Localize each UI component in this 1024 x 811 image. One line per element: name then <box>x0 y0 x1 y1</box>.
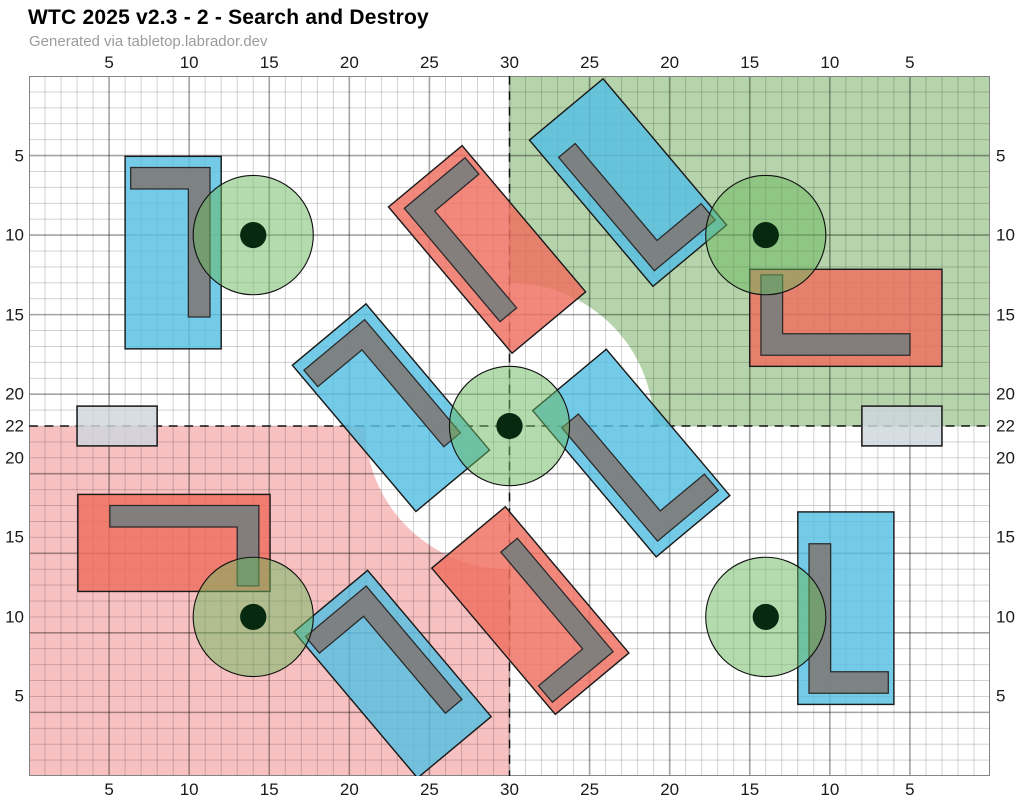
axis-tick-label: 15 <box>996 529 1015 546</box>
deployment-map-page: WTC 2025 v2.3 - 2 - Search and Destroy G… <box>0 0 1024 811</box>
axis-tick-label: 20 <box>996 449 1015 466</box>
axis-tick-label: 10 <box>996 227 1015 244</box>
axis-tick-label: 15 <box>740 54 759 71</box>
axis-tick-label: 20 <box>5 449 24 466</box>
deployment-map-plot <box>29 76 990 776</box>
edge-marker <box>862 406 942 446</box>
objective-marker <box>193 175 313 294</box>
axis-tick-label: 5 <box>905 781 914 798</box>
axis-tick-label: 25 <box>420 54 439 71</box>
axis-tick-label: 20 <box>5 386 24 403</box>
axis-tick-label: 5 <box>104 54 113 71</box>
axis-tick-label: 20 <box>996 386 1015 403</box>
axis-tick-label: 5 <box>996 147 1005 164</box>
page-title: WTC 2025 v2.3 - 2 - Search and Destroy <box>28 6 429 30</box>
axis-tick-label: 5 <box>104 781 113 798</box>
axis-tick-label: 5 <box>905 54 914 71</box>
axis-tick-label: 10 <box>820 781 839 798</box>
axis-tick-label: 20 <box>340 781 359 798</box>
axis-tick-label: 5 <box>15 688 24 705</box>
axis-tick-label: 15 <box>5 529 24 546</box>
axis-tick-label: 10 <box>996 608 1015 625</box>
axis-tick-label: 10 <box>5 227 24 244</box>
axis-tick-label: 10 <box>5 608 24 625</box>
objective-marker <box>706 175 826 294</box>
axis-tick-label: 15 <box>5 306 24 323</box>
axis-tick-label: 10 <box>180 54 199 71</box>
objective-marker <box>449 366 569 485</box>
axis-tick-label: 25 <box>420 781 439 798</box>
page-subtitle: Generated via tabletop.labrador.dev <box>29 33 268 50</box>
axis-tick-label: 5 <box>15 147 24 164</box>
deployment-map-svg <box>29 76 990 776</box>
axis-tick-label: 30 <box>500 54 519 71</box>
axis-tick-label: 5 <box>996 688 1005 705</box>
axis-tick-label: 10 <box>820 54 839 71</box>
axis-tick-label: 15 <box>740 781 759 798</box>
axis-tick-label: 20 <box>660 781 679 798</box>
objective-marker <box>193 557 313 676</box>
axis-tick-label: 25 <box>580 54 599 71</box>
objective-marker <box>706 557 826 676</box>
axis-tick-label: 15 <box>260 54 279 71</box>
axis-tick-label: 30 <box>500 781 519 798</box>
axis-tick-label: 25 <box>580 781 599 798</box>
axis-tick-label: 15 <box>260 781 279 798</box>
axis-tick-label: 22 <box>5 418 24 435</box>
axis-tick-label: 20 <box>340 54 359 71</box>
axis-tick-label: 10 <box>180 781 199 798</box>
axis-tick-label: 15 <box>996 306 1015 323</box>
edge-marker <box>77 406 157 446</box>
axis-tick-label: 22 <box>996 418 1015 435</box>
axis-tick-label: 20 <box>660 54 679 71</box>
